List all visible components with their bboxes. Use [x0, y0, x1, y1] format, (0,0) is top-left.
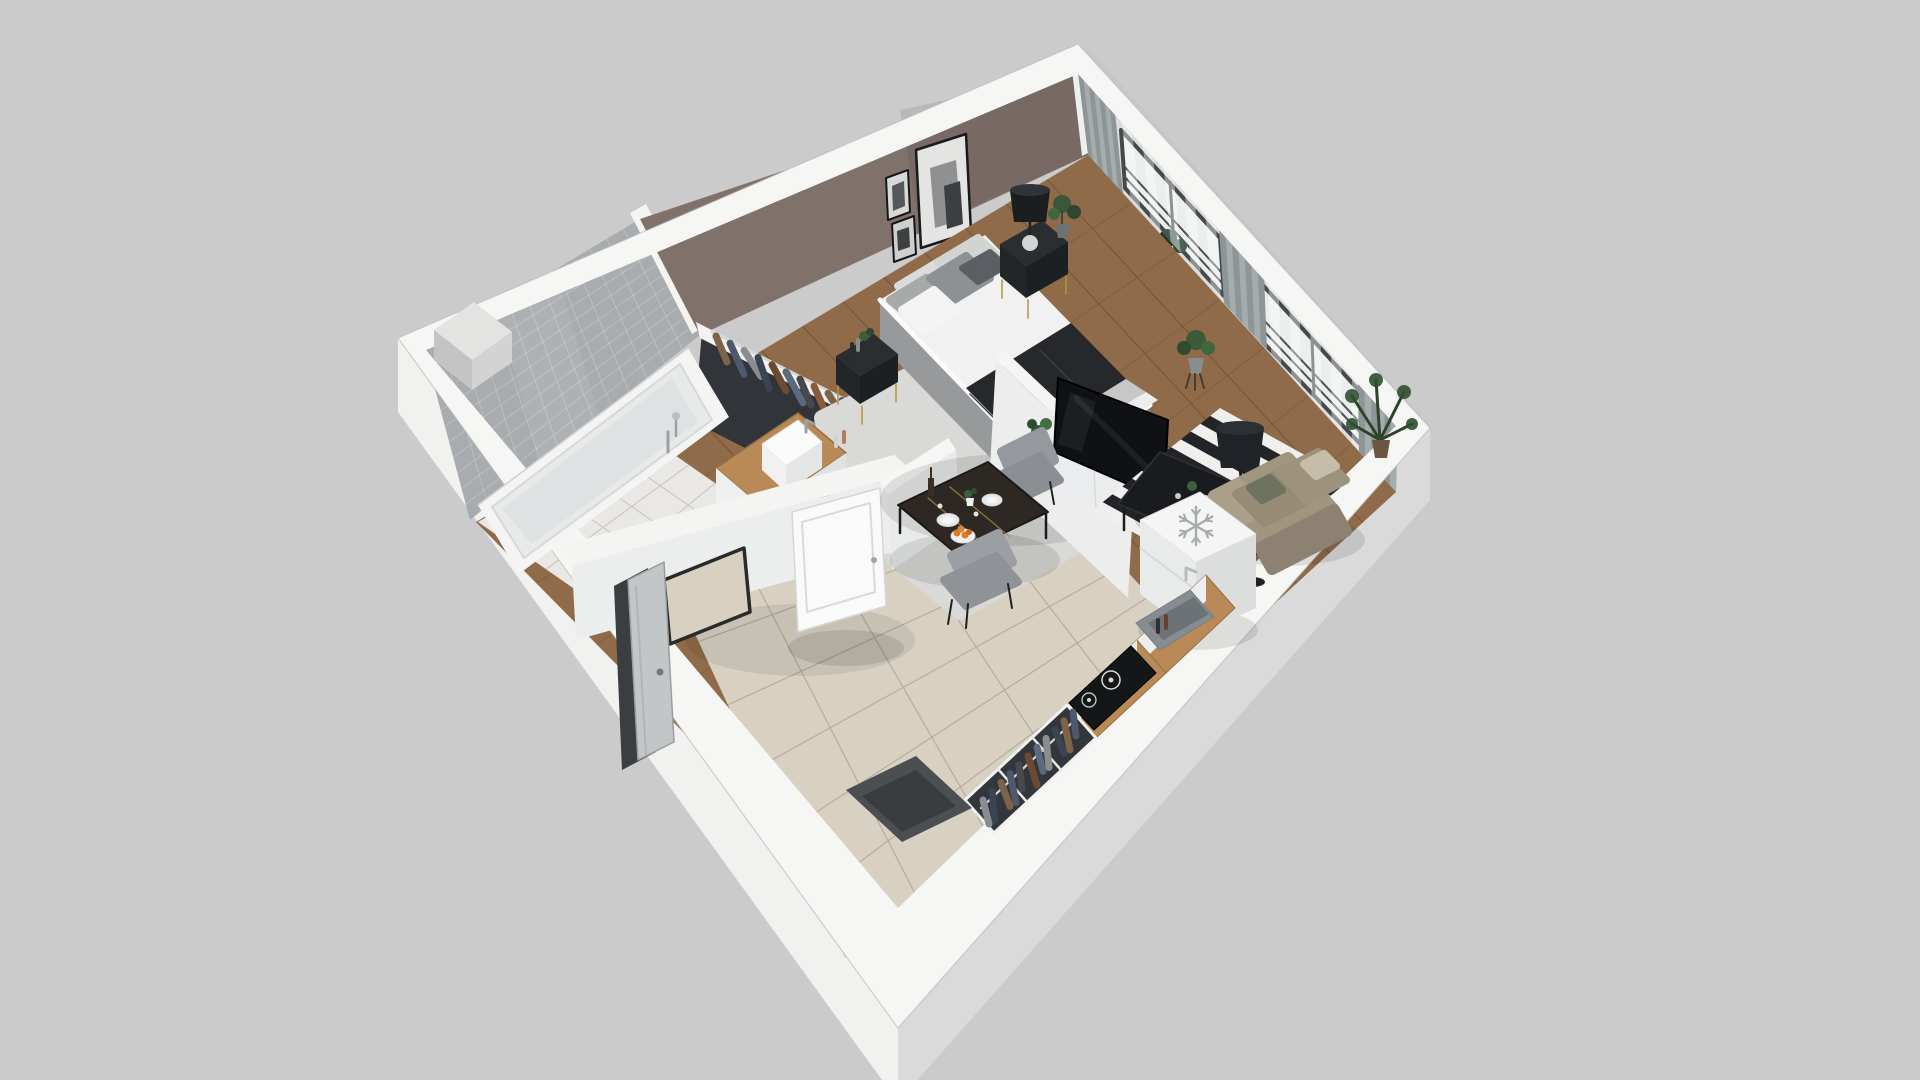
- wall-art-small-bottom-photo: [897, 227, 910, 251]
- palm-plant-pot: [1372, 440, 1390, 458]
- palm-plant-leaves-a: [1345, 389, 1359, 403]
- fruit-orange-d: [966, 529, 972, 535]
- wine-bottle: [928, 478, 934, 496]
- corner-plant-leaf-c: [1048, 208, 1060, 220]
- coffee-table-cup-b: [1175, 493, 1181, 499]
- wall-art-small-top-photo: [892, 181, 905, 211]
- fruit-orange-c: [958, 526, 965, 533]
- palm-plant-leaves-b: [1369, 373, 1383, 387]
- palm-plant-leaves-d: [1406, 418, 1418, 430]
- dining-plate-far-inner: [987, 497, 998, 503]
- drink-glass-b: [974, 512, 979, 517]
- dining-plate-near-inner: [942, 517, 954, 524]
- nightstand-left-plant-b: [866, 328, 874, 336]
- apartment-3d-floorplan: [0, 0, 1920, 1080]
- floor-lamp-shade-top: [1216, 421, 1264, 435]
- palm-plant-leaves-e: [1346, 418, 1358, 430]
- entry-door-handle: [657, 669, 664, 676]
- palm-plant-leaves-c: [1397, 385, 1411, 399]
- hob-burner-large-dot: [1109, 678, 1114, 683]
- wall-art-large-portrait-dark: [944, 181, 963, 229]
- bathroom-door-handle: [871, 557, 877, 563]
- table-plant-cup: [966, 498, 974, 506]
- floorplan-render-canvas: [0, 0, 1920, 1080]
- corner-plant-leaf-b: [1067, 205, 1081, 219]
- table-lamp-base: [1022, 235, 1038, 251]
- sofa-pillow-a: [1250, 478, 1282, 500]
- coffee-table-plant: [1187, 481, 1197, 491]
- shower-head: [672, 412, 680, 420]
- table-plant-a: [964, 490, 972, 498]
- corner-plant-pot: [1056, 224, 1070, 238]
- table-plant-b: [971, 488, 977, 494]
- plant-stand-foliage-b: [1177, 341, 1191, 355]
- sofa-pillow-b: [1304, 454, 1336, 476]
- bathroom-door-shadow: [788, 630, 904, 666]
- table-lamp-shade-top: [1010, 184, 1050, 196]
- hob-burner-small-dot: [1087, 698, 1091, 702]
- tv-cabinet-plant-c: [1027, 419, 1037, 429]
- plant-stand-foliage-c: [1201, 341, 1215, 355]
- drink-glass-a: [938, 504, 943, 509]
